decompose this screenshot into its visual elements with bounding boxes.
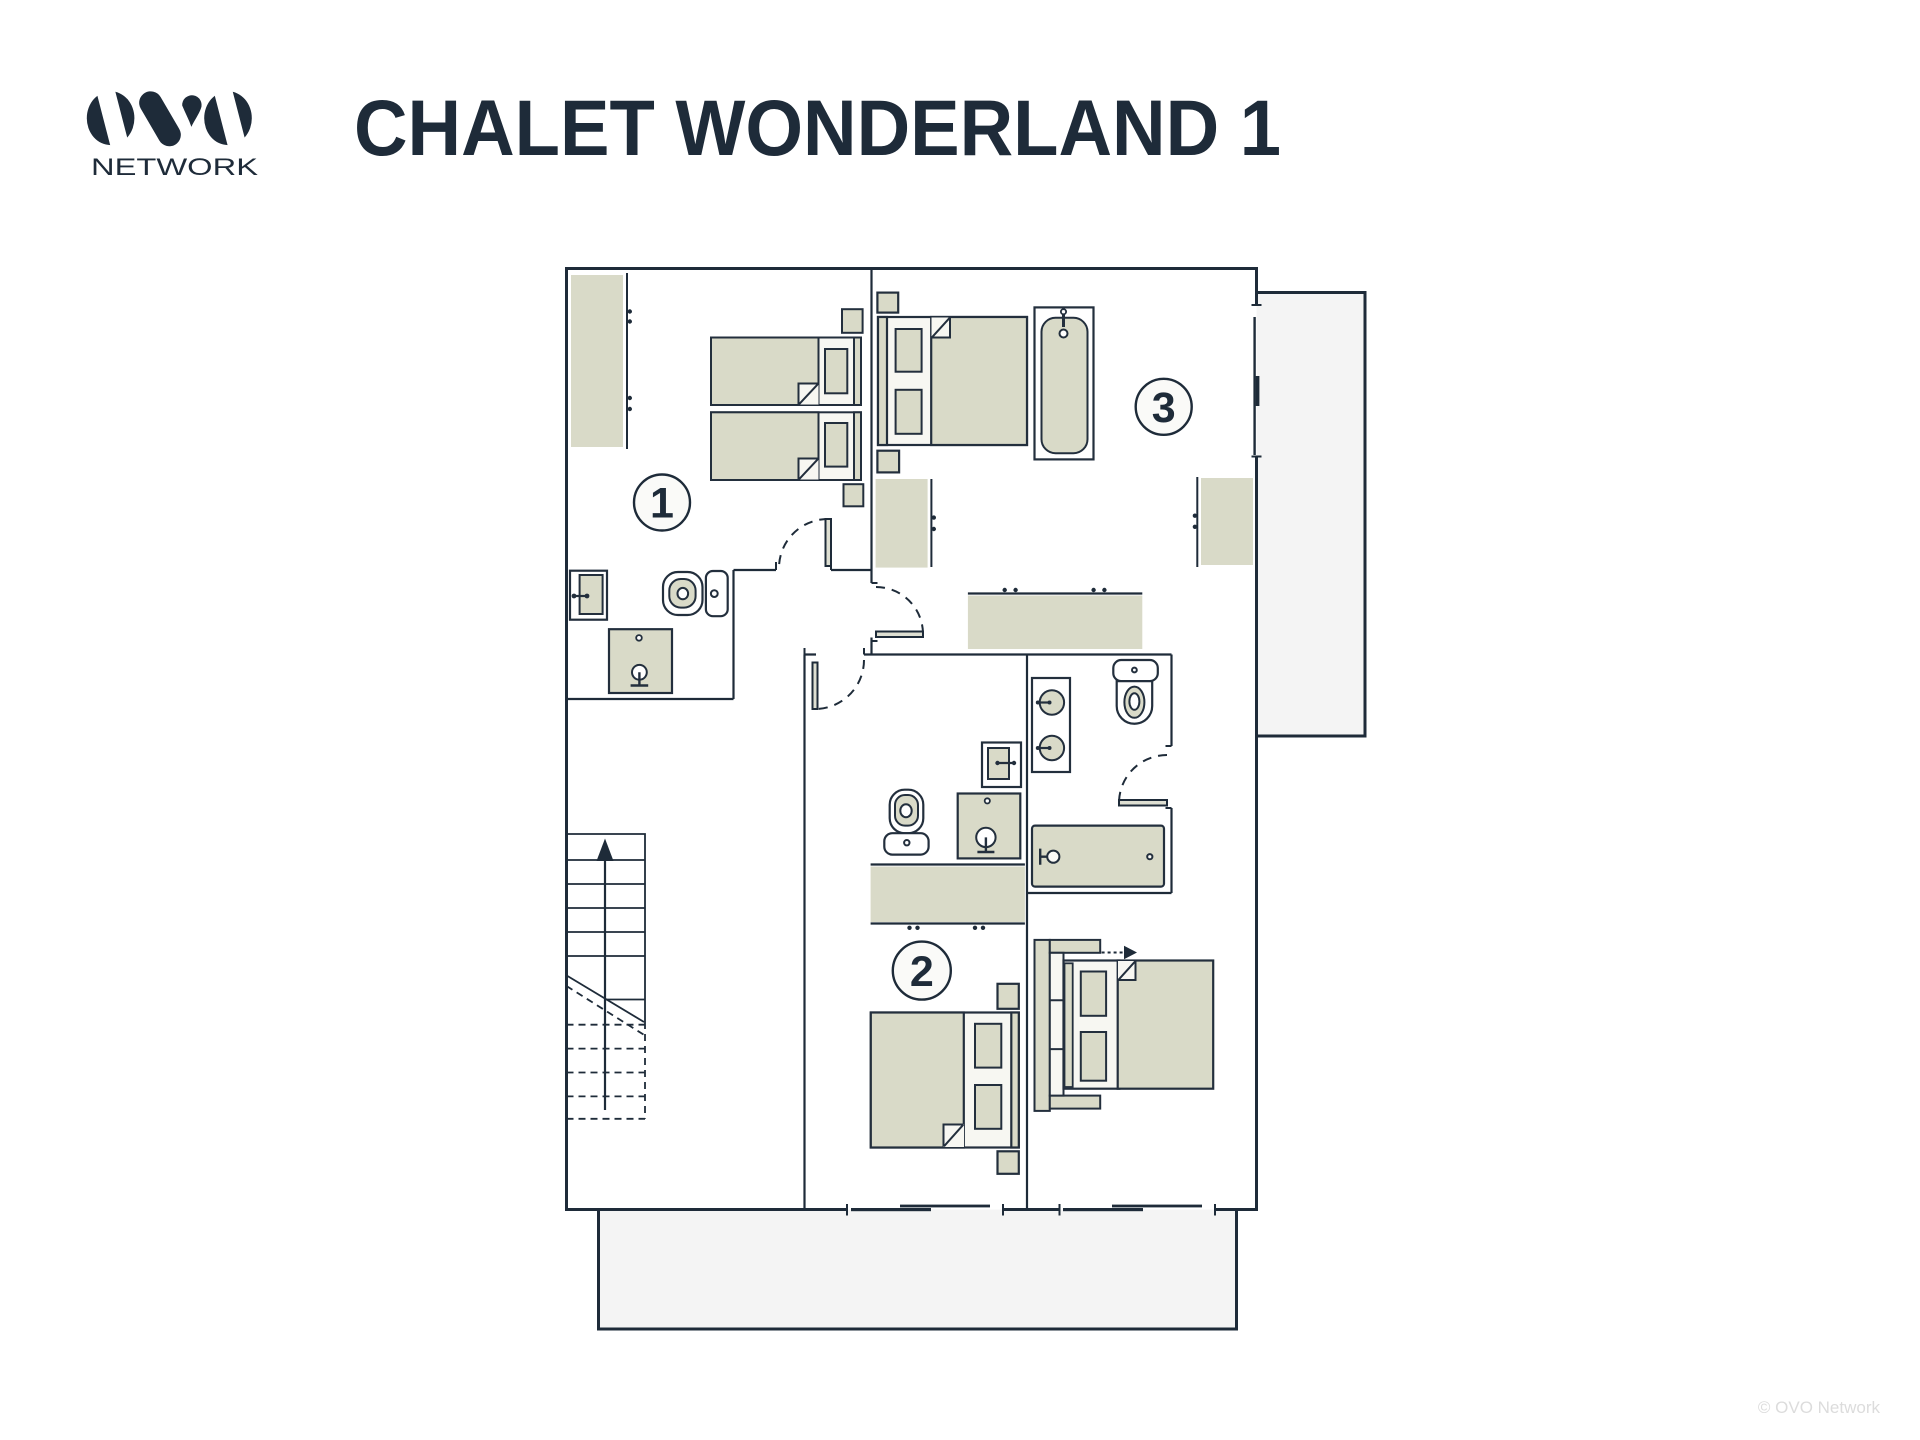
svg-text:© OVO Network: © OVO Network xyxy=(1758,1398,1881,1417)
svg-text:2: 2 xyxy=(910,948,934,996)
svg-text:3: 3 xyxy=(1152,384,1176,432)
svg-text:CHALET WONDERLAND 1: CHALET WONDERLAND 1 xyxy=(354,83,1281,172)
svg-text:1: 1 xyxy=(650,480,674,528)
svg-text:NETWORK: NETWORK xyxy=(91,154,258,181)
